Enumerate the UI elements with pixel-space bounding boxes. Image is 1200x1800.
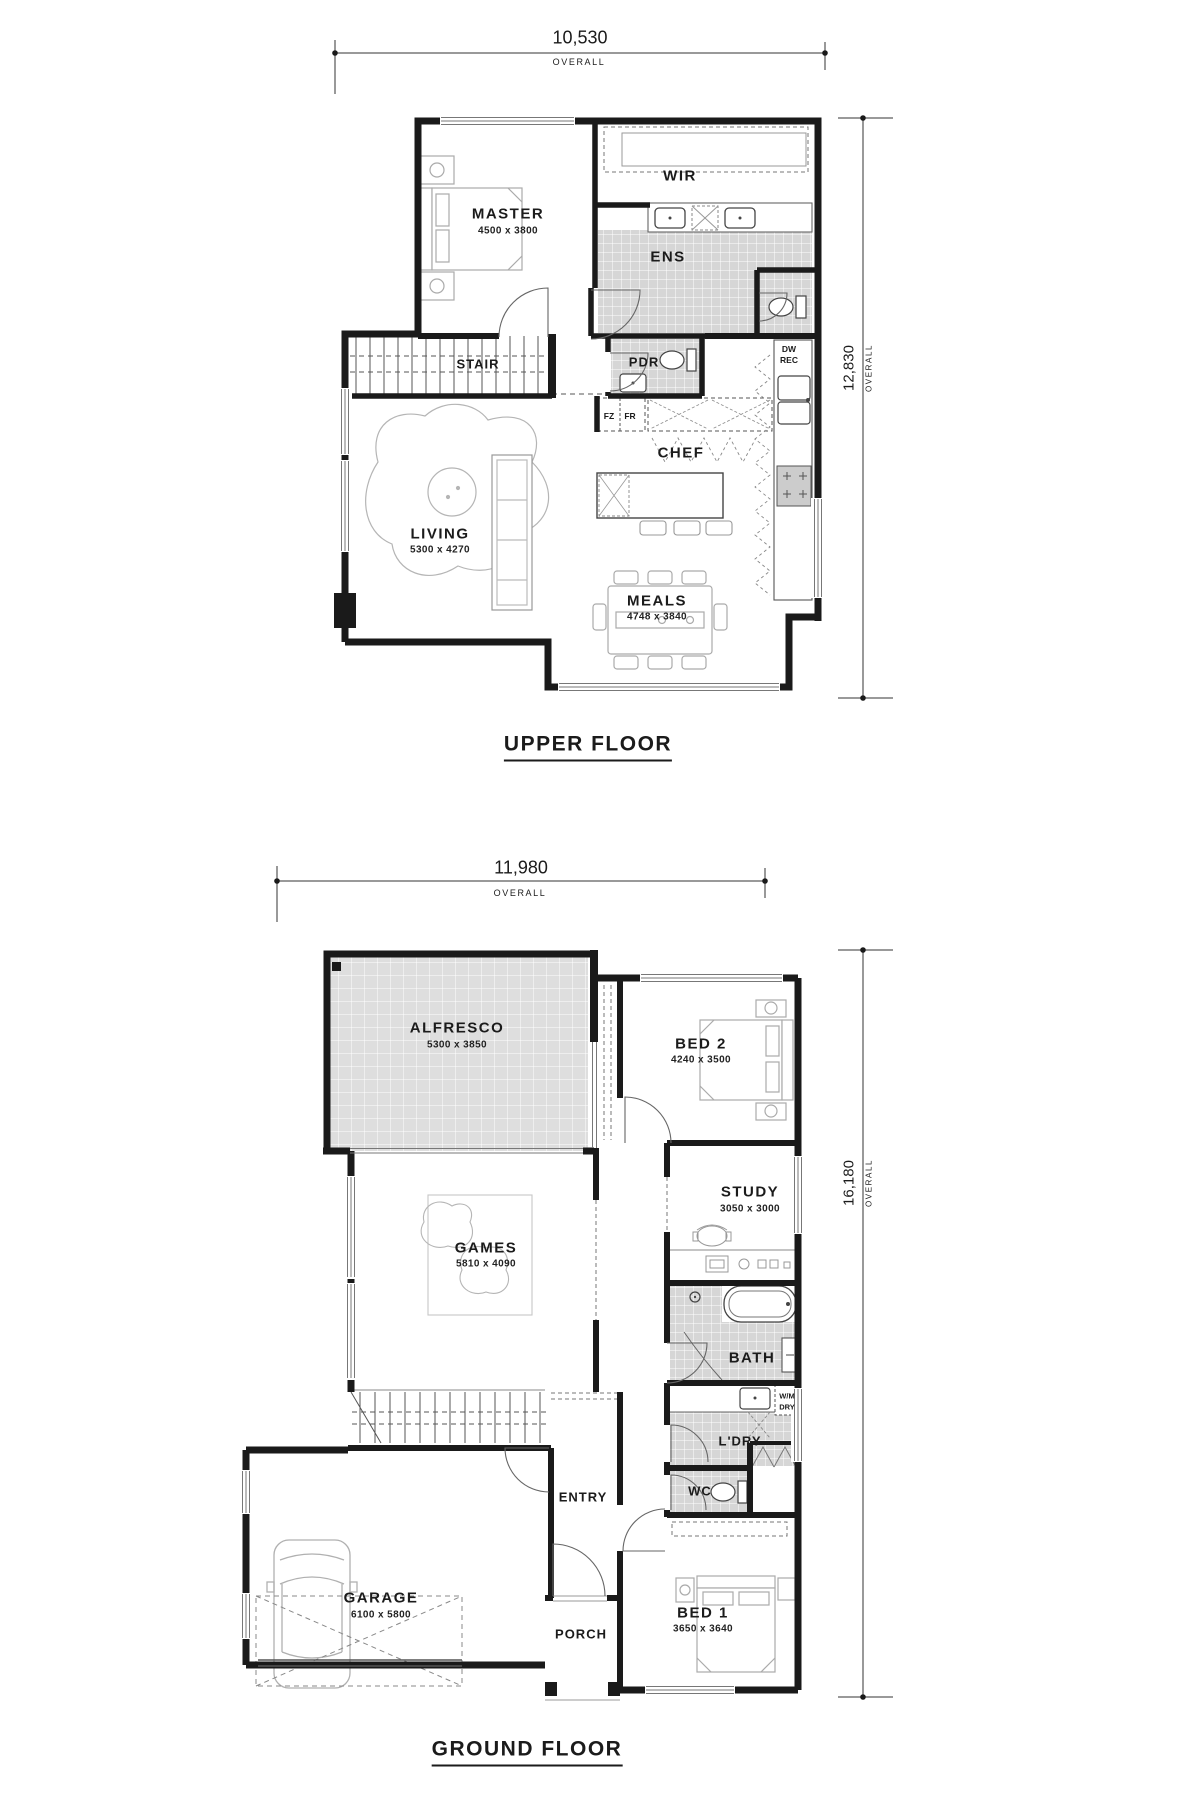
appliance-label-wm: W/M <box>779 1392 794 1401</box>
floorplan-drawing <box>0 0 1200 1800</box>
room-label-garage: GARAGE <box>344 1590 419 1607</box>
room-label-master: MASTER <box>472 206 544 223</box>
room-label-wir: WIR <box>663 168 697 185</box>
room-dims-living: 5300 x 4270 <box>410 545 470 556</box>
room-label-chef: CHEF <box>658 445 705 462</box>
upper-height-dim-label: OVERALL <box>865 344 874 392</box>
room-label-bed2: BED 2 <box>675 1036 727 1053</box>
living-furniture <box>366 404 549 610</box>
appliance-label-rec: REC <box>780 355 798 365</box>
room-dims-games: 5810 x 4090 <box>456 1259 516 1270</box>
room-label-bath: BATH <box>729 1350 776 1367</box>
ground-stair-treads <box>348 1390 548 1443</box>
ground-width-dim-label: OVERALL <box>494 888 547 898</box>
room-label-bed1: BED 1 <box>677 1605 729 1622</box>
room-label-alfresco: ALFRESCO <box>410 1020 505 1037</box>
study-furniture <box>670 1225 796 1272</box>
room-label-porch: PORCH <box>555 1627 607 1642</box>
room-dims-bed2: 4240 x 3500 <box>671 1055 731 1066</box>
ground-floor-title: GROUND FLOOR <box>432 1738 623 1767</box>
wir-robes <box>604 127 808 172</box>
room-dims-alfresco: 5300 x 3850 <box>427 1040 487 1051</box>
appliance-label-dw: DW <box>782 344 796 354</box>
appliance-label-fridge: FR <box>624 411 635 421</box>
room-label-study: STUDY <box>721 1184 779 1201</box>
ground-height-dim-value: 16,180 <box>841 1160 858 1206</box>
room-label-ldry: L'DRY <box>719 1434 762 1449</box>
room-label-meals: MEALS <box>627 593 687 610</box>
wc-fixtures <box>711 1481 747 1503</box>
appliance-label-freezer: FZ <box>604 411 614 421</box>
room-label-living: LIVING <box>410 526 469 543</box>
room-dims-meals: 4748 x 3840 <box>627 612 687 623</box>
room-label-ens: ENS <box>650 249 685 266</box>
appliance-label-dry: DRY <box>779 1403 795 1412</box>
room-label-wc: WC <box>688 1484 712 1499</box>
room-label-stair: STAIR <box>456 357 499 372</box>
upper-floor-drawing <box>332 40 893 701</box>
room-label-pdr: PDR <box>629 355 659 370</box>
room-dims-garage: 6100 x 5800 <box>351 1610 411 1621</box>
upper-height-dim-value: 12,830 <box>841 345 858 391</box>
room-label-games: GAMES <box>455 1240 518 1257</box>
room-dims-bed1: 3650 x 3640 <box>673 1624 733 1635</box>
upper-floor-title: UPPER FLOOR <box>504 733 672 762</box>
room-dims-master: 4500 x 3800 <box>478 226 538 237</box>
ground-width-dim-value: 11,980 <box>494 858 548 879</box>
ground-height-dim-label: OVERALL <box>865 1159 874 1207</box>
upper-width-dim-label: OVERALL <box>553 57 606 67</box>
ground-floor-drawing <box>239 866 893 1700</box>
room-dims-study: 3050 x 3000 <box>720 1204 780 1215</box>
upper-width-dim-value: 10,530 <box>552 28 607 49</box>
room-label-entry: ENTRY <box>559 1490 608 1505</box>
